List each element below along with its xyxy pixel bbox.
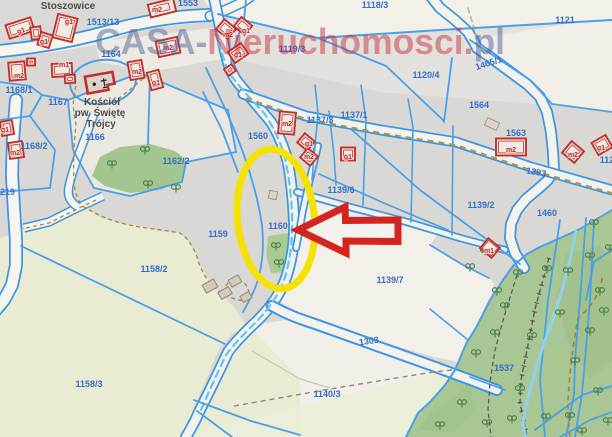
svg-text:1537: 1537 [494,363,514,373]
svg-text:m2: m2 [282,121,292,128]
svg-text:1167: 1167 [48,97,68,107]
svg-text:Kościół: Kościół [84,97,120,108]
svg-text:pw. Świętę: pw. Świętę [75,106,126,119]
svg-text:1168/1: 1168/1 [5,85,32,95]
svg-text:m2: m2 [568,152,578,159]
svg-text:m2: m2 [10,150,20,157]
svg-text:1139/7: 1139/7 [376,275,403,285]
svg-text:Trójcy: Trójcy [86,119,116,130]
svg-text:1560: 1560 [248,131,268,141]
svg-text:g1: g1 [40,39,48,46]
svg-text:1137/1: 1137/1 [340,110,367,120]
svg-text:m2: m2 [14,73,24,80]
svg-text:g1: g1 [305,141,313,148]
svg-text:Stoszowice: Stoszowice [41,1,96,12]
svg-text:1460: 1460 [537,208,557,218]
svg-text:1139/6: 1139/6 [327,185,354,195]
svg-text:g1: g1 [152,80,160,87]
svg-text:1159: 1159 [208,229,228,239]
svg-text:1139/2: 1139/2 [467,200,494,210]
svg-text:112: 112 [600,155,612,165]
svg-text:219: 219 [0,187,15,197]
svg-text:1160: 1160 [268,221,288,231]
svg-text:1166: 1166 [85,132,105,142]
svg-text:1158/3: 1158/3 [75,379,102,389]
svg-text:1140/3: 1140/3 [313,389,340,399]
svg-text:m1: m1 [59,62,69,69]
svg-text:g1: g1 [344,154,352,161]
svg-text:g1: g1 [597,145,605,152]
svg-text:1553: 1553 [178,0,198,8]
svg-text:m2: m2 [152,7,162,14]
svg-text:m2: m2 [304,154,314,161]
svg-text:1162/2: 1162/2 [162,156,189,166]
svg-text:m1: m1 [484,248,494,255]
svg-text:m2: m2 [132,69,142,76]
svg-text:1564: 1564 [469,100,489,110]
svg-text:1118/3: 1118/3 [362,0,389,10]
svg-text:1158/2: 1158/2 [140,264,167,274]
svg-text:1120/4: 1120/4 [412,70,439,80]
svg-text:g1: g1 [65,19,73,26]
svg-text:1121: 1121 [555,15,575,25]
svg-text:CASA-Nieruchomosci.pl: CASA-Nieruchomosci.pl [95,21,505,62]
svg-text:1137/3: 1137/3 [306,115,333,125]
svg-text:1168/2: 1168/2 [20,141,47,151]
svg-text:1563: 1563 [506,128,526,138]
svg-text:m2: m2 [506,147,516,154]
svg-text:g1: g1 [1,127,9,134]
